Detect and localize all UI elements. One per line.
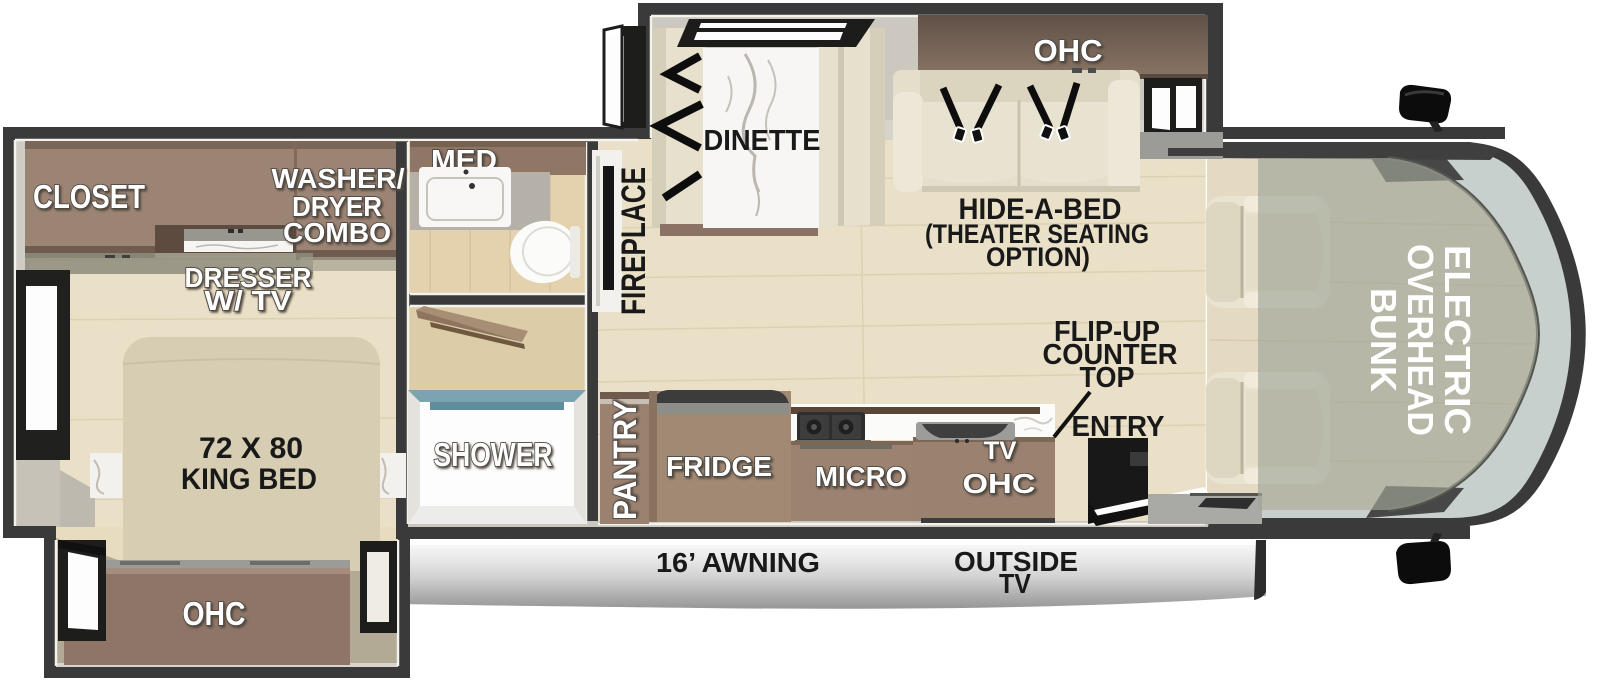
svg-text:OHC: OHC [963, 468, 1036, 499]
svg-text:FRIDGE: FRIDGE [666, 451, 772, 482]
svg-text:MICRO: MICRO [815, 461, 907, 492]
svg-text:PANTRY: PANTRY [607, 400, 643, 520]
svg-text:TOP: TOP [1080, 362, 1135, 394]
svg-text:TV: TV [999, 568, 1031, 599]
svg-text:OHC: OHC [183, 595, 246, 632]
svg-text:FIREPLACE: FIREPLACE [615, 167, 653, 315]
svg-text:ELECTRIC: ELECTRIC [1437, 245, 1478, 435]
svg-text:W/ TV: W/ TV [205, 285, 292, 316]
svg-text:WASHER/: WASHER/ [272, 163, 405, 194]
svg-text:16’ AWNING: 16’ AWNING [656, 547, 820, 578]
svg-text:CLOSET: CLOSET [33, 178, 145, 215]
svg-text:OHC: OHC [1034, 33, 1103, 68]
svg-text:TV: TV [984, 437, 1017, 465]
svg-text:KING BED: KING BED [181, 463, 317, 496]
svg-text:COMBO: COMBO [283, 217, 391, 248]
svg-text:72 X 80: 72 X 80 [199, 432, 303, 465]
svg-text:SHOWER: SHOWER [434, 436, 553, 473]
svg-text:BUNK: BUNK [1363, 288, 1404, 392]
svg-text:OPTION): OPTION) [986, 242, 1090, 272]
svg-text:DINETTE: DINETTE [704, 125, 821, 157]
svg-text:OVERHEAD: OVERHEAD [1400, 244, 1441, 436]
